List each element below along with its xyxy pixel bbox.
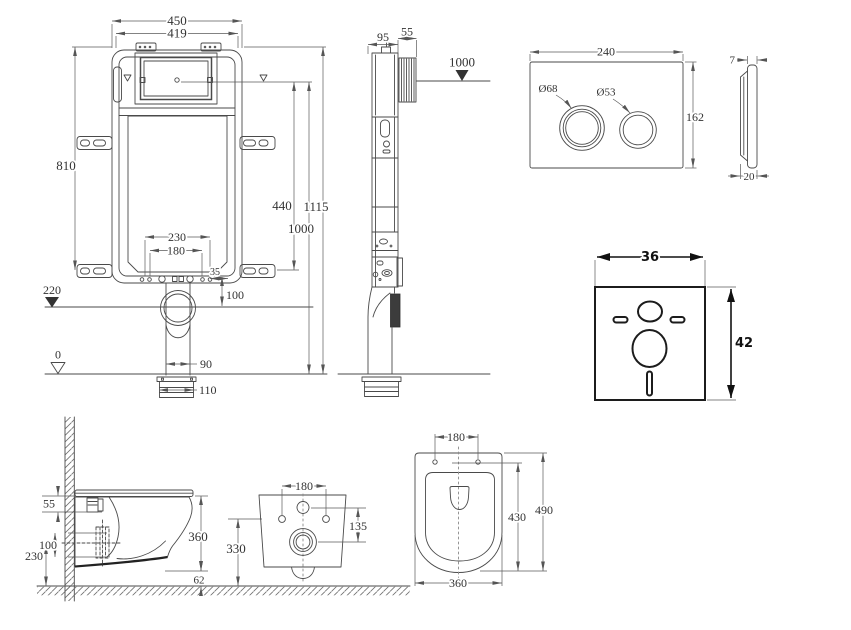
dim-outlet-drop: 100 bbox=[226, 288, 244, 302]
dim-clearance: 62 bbox=[194, 575, 205, 587]
plate-side-dimensions bbox=[728, 56, 769, 179]
sound-insulation-mat-view: 36 42 bbox=[595, 250, 753, 400]
dim-frame-inner-width: 419 bbox=[167, 26, 187, 41]
frame-foot bbox=[160, 382, 194, 398]
wall-section bbox=[65, 417, 74, 601]
dim-bolt-inner: 180 bbox=[167, 244, 185, 258]
mat-dimensions bbox=[595, 257, 736, 400]
fixing-hole-right bbox=[323, 516, 330, 523]
toilet-side-view: 55 100 230 360 62 330 bbox=[25, 417, 410, 601]
dim-rear-outlet-offset: 135 bbox=[349, 519, 367, 533]
level-label-0: 0 bbox=[55, 348, 61, 362]
dim-total-length: 490 bbox=[535, 503, 553, 517]
dim-frame-height: 810 bbox=[56, 158, 76, 173]
dim-center-height: 1000 bbox=[288, 221, 314, 236]
dim-wall-pipe: 55 bbox=[401, 25, 413, 39]
fixing-hole-left bbox=[279, 516, 286, 523]
sound-mat bbox=[595, 287, 705, 400]
toilet-top-view: 180 430 490 360 bbox=[415, 430, 553, 590]
dim-plate-height: 162 bbox=[686, 110, 704, 124]
floor-hatch bbox=[37, 587, 410, 596]
dim-bolt-outer: 230 bbox=[168, 230, 186, 244]
toilet-rear-view: 180 135 bbox=[259, 479, 367, 581]
level-marker-220 bbox=[45, 297, 59, 308]
outlet-elbow bbox=[368, 287, 372, 374]
dim-plate-width: 240 bbox=[597, 45, 615, 59]
dim-mat-width: 36 bbox=[641, 250, 659, 265]
dim-frame-depth: 95 bbox=[377, 30, 389, 44]
flush-plate-side-view: 7 20 bbox=[728, 55, 769, 184]
dim-small-button-diameter: Ø53 bbox=[597, 87, 616, 99]
level-marker-0 bbox=[51, 363, 65, 374]
level-marker-1000 bbox=[456, 70, 469, 81]
dim-total-height: 1115 bbox=[303, 199, 328, 214]
dim-outlet-height: 230 bbox=[25, 549, 43, 563]
toilet-top-dimensions bbox=[415, 434, 547, 586]
dim-toilet-width: 360 bbox=[449, 576, 467, 590]
small-flush-button bbox=[620, 112, 657, 149]
fixing-point-left bbox=[433, 460, 437, 464]
toilet-bowl-profile bbox=[75, 497, 192, 567]
big-flush-button bbox=[560, 106, 605, 151]
flush-plate-front-view: 240 162 Ø68 Ø53 bbox=[530, 45, 704, 169]
technical-drawing-page: 450 419 810 440 1115 1000 230 180 35 100… bbox=[0, 0, 851, 630]
dim-foot-width: 110 bbox=[199, 383, 217, 397]
toilet-installation-drawing: 450 419 810 440 1115 1000 230 180 35 100… bbox=[0, 0, 851, 630]
dim-plate-depth: 20 bbox=[744, 171, 756, 183]
level-label-220: 220 bbox=[43, 283, 61, 297]
level-label-1000: 1000 bbox=[449, 55, 475, 70]
cistern-frame-side-view: 95 55 1000 bbox=[338, 25, 490, 397]
dim-edge-offset: 35 bbox=[210, 267, 220, 278]
dim-plate-thickness: 7 bbox=[730, 55, 736, 67]
flush-inlet-top bbox=[450, 487, 469, 510]
dim-big-button-diameter: Ø68 bbox=[539, 83, 558, 95]
plate-profile bbox=[748, 65, 758, 168]
dim-rear-height: 330 bbox=[226, 541, 246, 556]
toilet-rear-body bbox=[259, 495, 346, 567]
dim-top-hole-spacing: 180 bbox=[447, 430, 465, 444]
dim-hole-spacing: 180 bbox=[295, 479, 313, 493]
cistern-frame-front-view: 450 419 810 440 1115 1000 230 180 35 100… bbox=[43, 13, 329, 398]
flush-plate bbox=[530, 62, 683, 168]
dim-flush-center: 440 bbox=[272, 198, 292, 213]
plate-dimensions bbox=[530, 52, 697, 168]
water-inlet-hole bbox=[297, 502, 309, 514]
dim-mat-height: 42 bbox=[735, 336, 753, 351]
dim-fixing: 55 bbox=[43, 497, 55, 511]
dim-bowl-length: 430 bbox=[508, 510, 526, 524]
dim-body-height: 360 bbox=[188, 529, 208, 544]
fixing-point-right bbox=[476, 460, 480, 464]
toilet-rear-dimensions bbox=[282, 486, 366, 542]
dim-pipe-width: 90 bbox=[200, 357, 212, 371]
toilet-rim-inner bbox=[426, 473, 495, 562]
